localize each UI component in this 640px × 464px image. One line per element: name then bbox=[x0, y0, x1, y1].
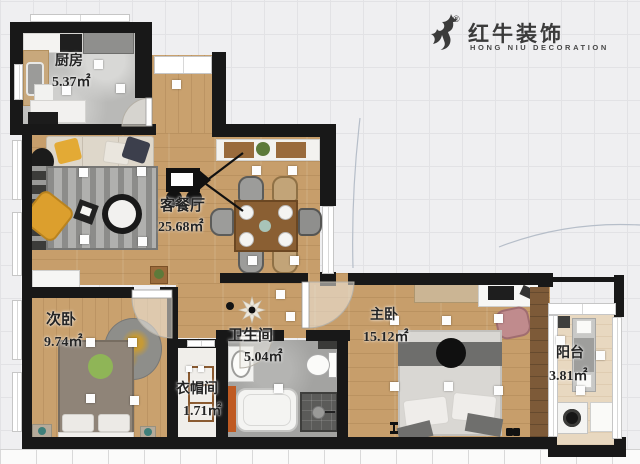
room-area: 25.68㎡ bbox=[158, 221, 205, 236]
dining-top-wall bbox=[212, 124, 336, 137]
shower-drain bbox=[312, 406, 325, 419]
downlight bbox=[186, 366, 192, 372]
second-bed-green-cushion bbox=[88, 354, 113, 379]
south-wall-west bbox=[22, 437, 348, 449]
camera-lens bbox=[198, 169, 211, 191]
plate-1 bbox=[239, 205, 254, 220]
downlight bbox=[248, 256, 257, 265]
room-area: 5.04㎡ bbox=[244, 351, 283, 366]
floor-plan: 厨房 5.37㎡ 客餐厅 25.68㎡ 次卧 9.74㎡ 卫生间 5.04㎡ 衣… bbox=[0, 0, 640, 464]
downlight bbox=[576, 386, 585, 395]
downlight bbox=[274, 384, 283, 393]
living-left-wall bbox=[22, 130, 32, 292]
downlight bbox=[596, 351, 605, 360]
room-name: 阳台 bbox=[556, 347, 588, 362]
downlight bbox=[288, 166, 297, 175]
downlight bbox=[80, 235, 89, 244]
room-area: 3.81㎡ bbox=[549, 370, 588, 385]
room-name: 厨房 bbox=[55, 55, 91, 70]
kitchen-left-window bbox=[14, 64, 23, 100]
balcony-east-window bbox=[612, 317, 622, 439]
balcony-north-window bbox=[548, 303, 616, 315]
downlight bbox=[276, 290, 285, 299]
label-master-bedroom: 主卧 15.12㎡ bbox=[370, 309, 409, 345]
dining-right-wall bbox=[320, 126, 336, 206]
downlight bbox=[86, 338, 95, 347]
dining-chair-left bbox=[210, 208, 234, 236]
table-centerpiece bbox=[259, 220, 271, 232]
downlight bbox=[137, 167, 146, 176]
laptop-icon bbox=[488, 286, 514, 300]
downlight bbox=[556, 336, 565, 345]
washing-machine-door bbox=[563, 409, 581, 427]
downlight bbox=[130, 396, 139, 405]
dining-east-window bbox=[322, 206, 334, 274]
label-living-dining: 客餐厅 25.68㎡ bbox=[160, 199, 205, 235]
neighbor-door-arc-2 bbox=[499, 224, 640, 247]
label-bathroom: 卫生间 5.04㎡ bbox=[228, 329, 283, 365]
downlight bbox=[94, 60, 103, 69]
dining-chair-top-right bbox=[272, 176, 298, 202]
bench-marker bbox=[390, 422, 398, 434]
downlight bbox=[116, 84, 125, 93]
neighbor-door-arc-1 bbox=[353, 118, 360, 268]
kitchen-right-wall bbox=[135, 28, 152, 98]
downlight bbox=[390, 382, 399, 391]
second-nightstand-left-decor bbox=[38, 427, 46, 435]
master-wardrobe bbox=[530, 287, 549, 437]
second-bed-pillow-right bbox=[98, 414, 130, 432]
brand-subtitle: HONG NIU DECORATION bbox=[470, 43, 609, 52]
room-name: 主卧 bbox=[370, 309, 409, 324]
sideboard-panel-2 bbox=[276, 142, 306, 158]
camera-screen bbox=[171, 173, 193, 186]
dining-chair-top-left bbox=[238, 176, 264, 202]
bathtub-inner bbox=[243, 394, 291, 426]
second-bedroom-north-wall bbox=[22, 287, 134, 298]
cloakroom-door-notch bbox=[187, 340, 215, 347]
label-kitchen: 厨房 5.37㎡ bbox=[55, 55, 91, 90]
slippers bbox=[506, 428, 520, 436]
dining-window-corner bbox=[320, 272, 336, 286]
kitchen-top-window bbox=[30, 14, 130, 22]
second-bedroom-east-wall bbox=[167, 287, 178, 449]
coffee-table-top bbox=[108, 200, 136, 228]
downlight bbox=[290, 256, 299, 265]
room-name: 卫生间 bbox=[228, 329, 283, 345]
registered-mark: ® bbox=[453, 14, 460, 24]
corridor-north-wall bbox=[220, 273, 308, 283]
room-name: 客餐厅 bbox=[160, 199, 205, 215]
kitchen-top-wall bbox=[10, 22, 152, 33]
label-second-bedroom: 次卧 9.74㎡ bbox=[46, 313, 83, 350]
master-dresser bbox=[414, 283, 480, 303]
master-south-wall bbox=[348, 437, 557, 449]
kitchen-fridge bbox=[83, 30, 134, 54]
plant-leaves bbox=[154, 269, 164, 279]
room-area: 1.71㎡ bbox=[183, 405, 222, 420]
dining-chair-right bbox=[298, 208, 322, 236]
second-bed-pillow-left bbox=[62, 414, 94, 432]
bathroom-east-wall bbox=[337, 332, 348, 447]
plate-2 bbox=[278, 205, 293, 220]
master-ne-corner bbox=[538, 273, 553, 287]
plate-3 bbox=[239, 232, 254, 247]
downlight bbox=[442, 316, 451, 325]
balcony-north-line bbox=[553, 277, 617, 282]
downlight bbox=[128, 338, 137, 347]
label-cloakroom: 衣帽间 1.71㎡ bbox=[176, 383, 222, 419]
plate-4 bbox=[278, 232, 293, 247]
second-bedroom-left-wall bbox=[22, 292, 32, 447]
brand-logo: ® 红牛装饰 HONG NIU DECORATION bbox=[424, 12, 624, 60]
balcony-south-wall bbox=[548, 445, 626, 457]
living-window-2 bbox=[12, 212, 22, 276]
master-bed-black-cushion bbox=[436, 338, 466, 368]
downlight bbox=[444, 382, 453, 391]
downlight bbox=[138, 237, 147, 246]
hallway-right-wall bbox=[212, 55, 226, 132]
label-balcony: 阳台 3.81㎡ bbox=[556, 347, 588, 384]
room-area: 15.12㎡ bbox=[363, 331, 409, 346]
kitchen-stove-black bbox=[60, 34, 82, 52]
downlight bbox=[172, 80, 181, 89]
room-area: 5.37㎡ bbox=[52, 76, 91, 91]
toilet-bowl bbox=[306, 354, 330, 376]
corridor-ceiling-lamp-dot bbox=[226, 302, 234, 310]
downlight bbox=[198, 366, 204, 372]
exterior-tiles-bottom bbox=[0, 449, 640, 464]
room-area: 9.74㎡ bbox=[44, 336, 83, 351]
downlight bbox=[252, 166, 261, 175]
downlight bbox=[79, 168, 88, 177]
downlight bbox=[86, 394, 95, 403]
downlight bbox=[494, 314, 503, 323]
master-north-wall bbox=[348, 273, 553, 285]
second-bedroom-window-1 bbox=[12, 300, 22, 360]
living-window-1 bbox=[12, 140, 22, 200]
sideboard-panel-1 bbox=[224, 142, 254, 158]
downlight bbox=[494, 386, 503, 395]
entry-door-slab bbox=[154, 56, 212, 74]
balcony-storage-dark bbox=[556, 316, 570, 328]
bathtub-cabinet-orange bbox=[228, 386, 236, 432]
sideboard-plant bbox=[256, 142, 270, 156]
room-name: 次卧 bbox=[46, 313, 83, 329]
room-name: 衣帽间 bbox=[176, 383, 222, 398]
balcony-table-top-tray bbox=[576, 320, 592, 334]
shower-handle bbox=[325, 411, 335, 413]
downlight bbox=[286, 312, 295, 321]
second-bedroom-window-2 bbox=[12, 372, 22, 432]
second-nightstand-right-decor bbox=[144, 428, 152, 436]
